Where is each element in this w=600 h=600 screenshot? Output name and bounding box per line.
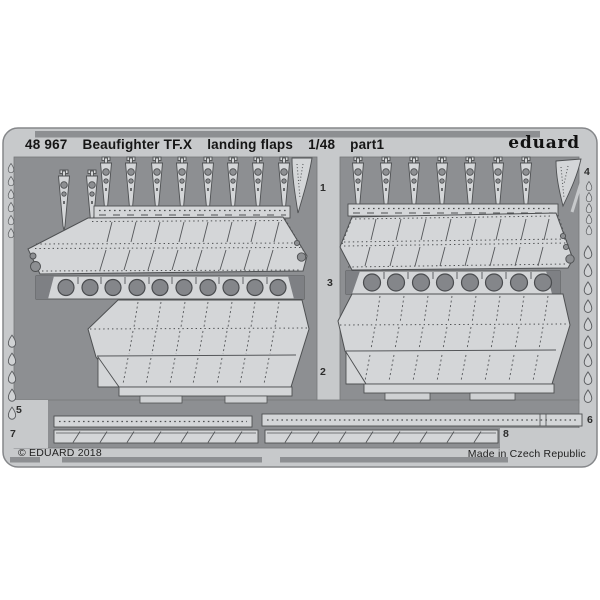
segmented-strip-7 [54, 430, 258, 443]
photo-etch-fret-graphic [0, 0, 600, 600]
product-image: 48 967 Beaufighter TF.X landing flaps 1/… [0, 0, 600, 600]
part-label-1: 1 [320, 182, 326, 194]
part-label-2: 2 [320, 366, 326, 378]
flap-spar-right [346, 271, 560, 294]
set-subject: landing flaps [207, 137, 293, 152]
flap-upper-skin-right [340, 213, 574, 270]
aircraft-name: Beaufighter TF.X [83, 137, 193, 152]
scale: 1/48 [308, 137, 335, 152]
part-label-8: 8 [503, 428, 509, 440]
eduard-logo: eduard [508, 133, 580, 153]
part-label-3: 3 [327, 277, 333, 289]
made-in-text: Made in Czech Republic [468, 448, 586, 460]
copyright-text: © EDUARD 2018 [18, 447, 102, 459]
rivet-strip-5 [54, 416, 252, 427]
fret-header: 48 967 Beaufighter TF.X landing flaps 1/… [25, 137, 384, 152]
rivet-strip-6 [262, 414, 582, 426]
product-code: 48 967 [25, 137, 68, 152]
flap-spar-left [36, 276, 304, 299]
flap-lower-skin-right [338, 294, 570, 400]
part-number: part1 [350, 137, 384, 152]
leading-edge-strip-left [94, 206, 290, 218]
flap-lower-skin-left [88, 300, 309, 403]
part-label-7: 7 [10, 428, 16, 440]
part-label-5: 5 [16, 404, 22, 416]
segmented-strip-8 [265, 430, 498, 443]
part-label-6: 6 [587, 414, 593, 426]
part-label-4: 4 [584, 166, 590, 178]
